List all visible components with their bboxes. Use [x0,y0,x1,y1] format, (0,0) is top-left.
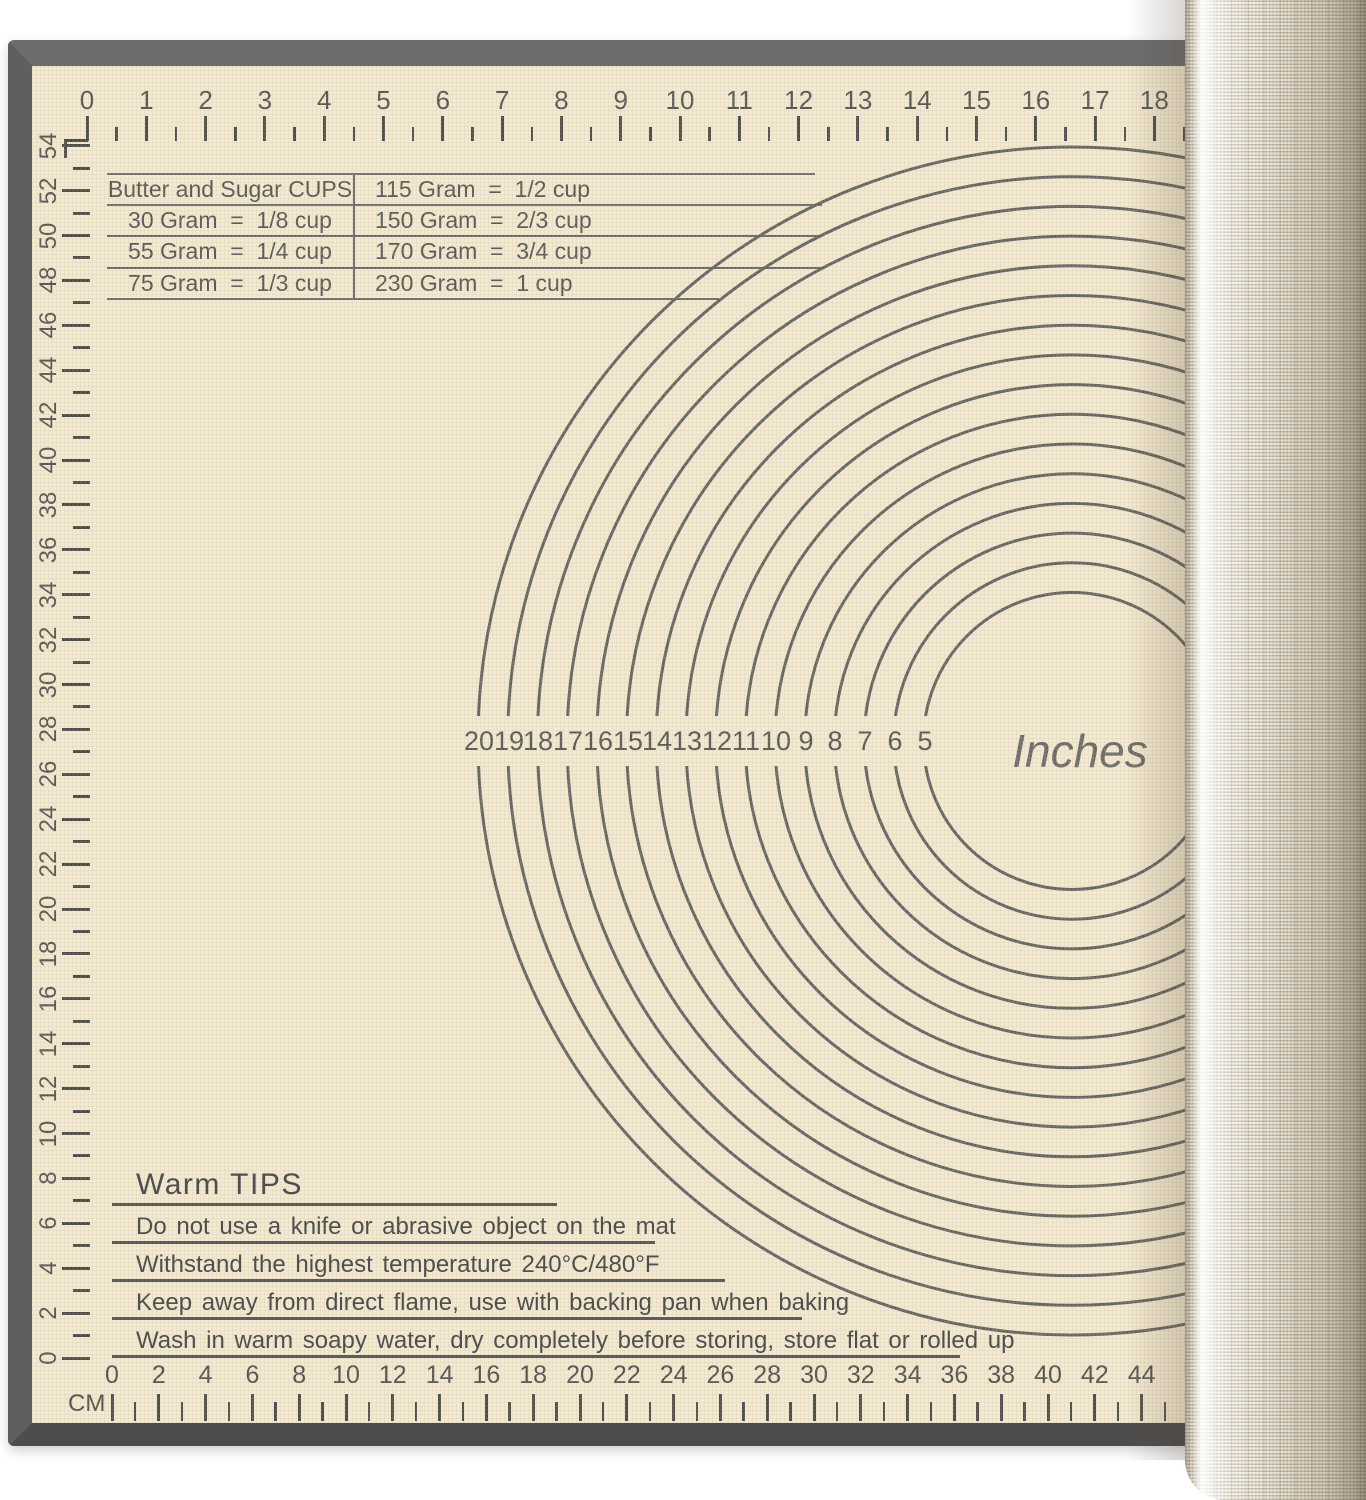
roll-cast-shadow [1127,0,1185,1460]
rolled-mat-cylinder [1185,0,1366,1500]
circle-diameter-number: 5 [917,726,932,756]
circle-diameter-number: 15 [613,726,643,756]
circle-diameter-number: 6 [887,726,902,756]
circle-diameter-number: 14 [642,726,672,756]
tip-1-underline [112,1241,655,1244]
circle-diameter-number: 11 [732,726,760,756]
circle-diameter-number: 8 [827,726,842,756]
circle-diameter-number: 13 [672,726,702,756]
circle-diameter-number: 16 [583,726,613,756]
tip-4-underline [112,1355,960,1358]
tip-3-underline [112,1317,802,1320]
tip-4: Wash in warm soapy water, dry completely… [136,1327,1014,1355]
circle-diameter-number: 20 [464,726,494,756]
circle-diameter-number: 19 [494,726,524,756]
circle-diameter-number: 10 [761,726,791,756]
tip-1: Do not use a knife or abrasive object on… [136,1213,676,1241]
circle-diameter-number: 18 [523,726,553,756]
circle-diameter-number: 9 [798,726,813,756]
tip-2: Withstand the highest temperature 240°C/… [136,1251,659,1279]
circle-diameter-number: 17 [553,726,583,756]
circle-diameter-number: 12 [702,726,732,756]
warm-tips-heading: Warm TIPS [136,1168,303,1202]
circle-diameter-number: 7 [857,726,872,756]
baking-mat-product-photo: 0123456789101112131415161718 02468101214… [0,0,1366,1500]
heading-underline [112,1203,557,1206]
tip-3: Keep away from direct flame, use with ba… [136,1289,849,1317]
tip-2-underline [112,1279,725,1282]
